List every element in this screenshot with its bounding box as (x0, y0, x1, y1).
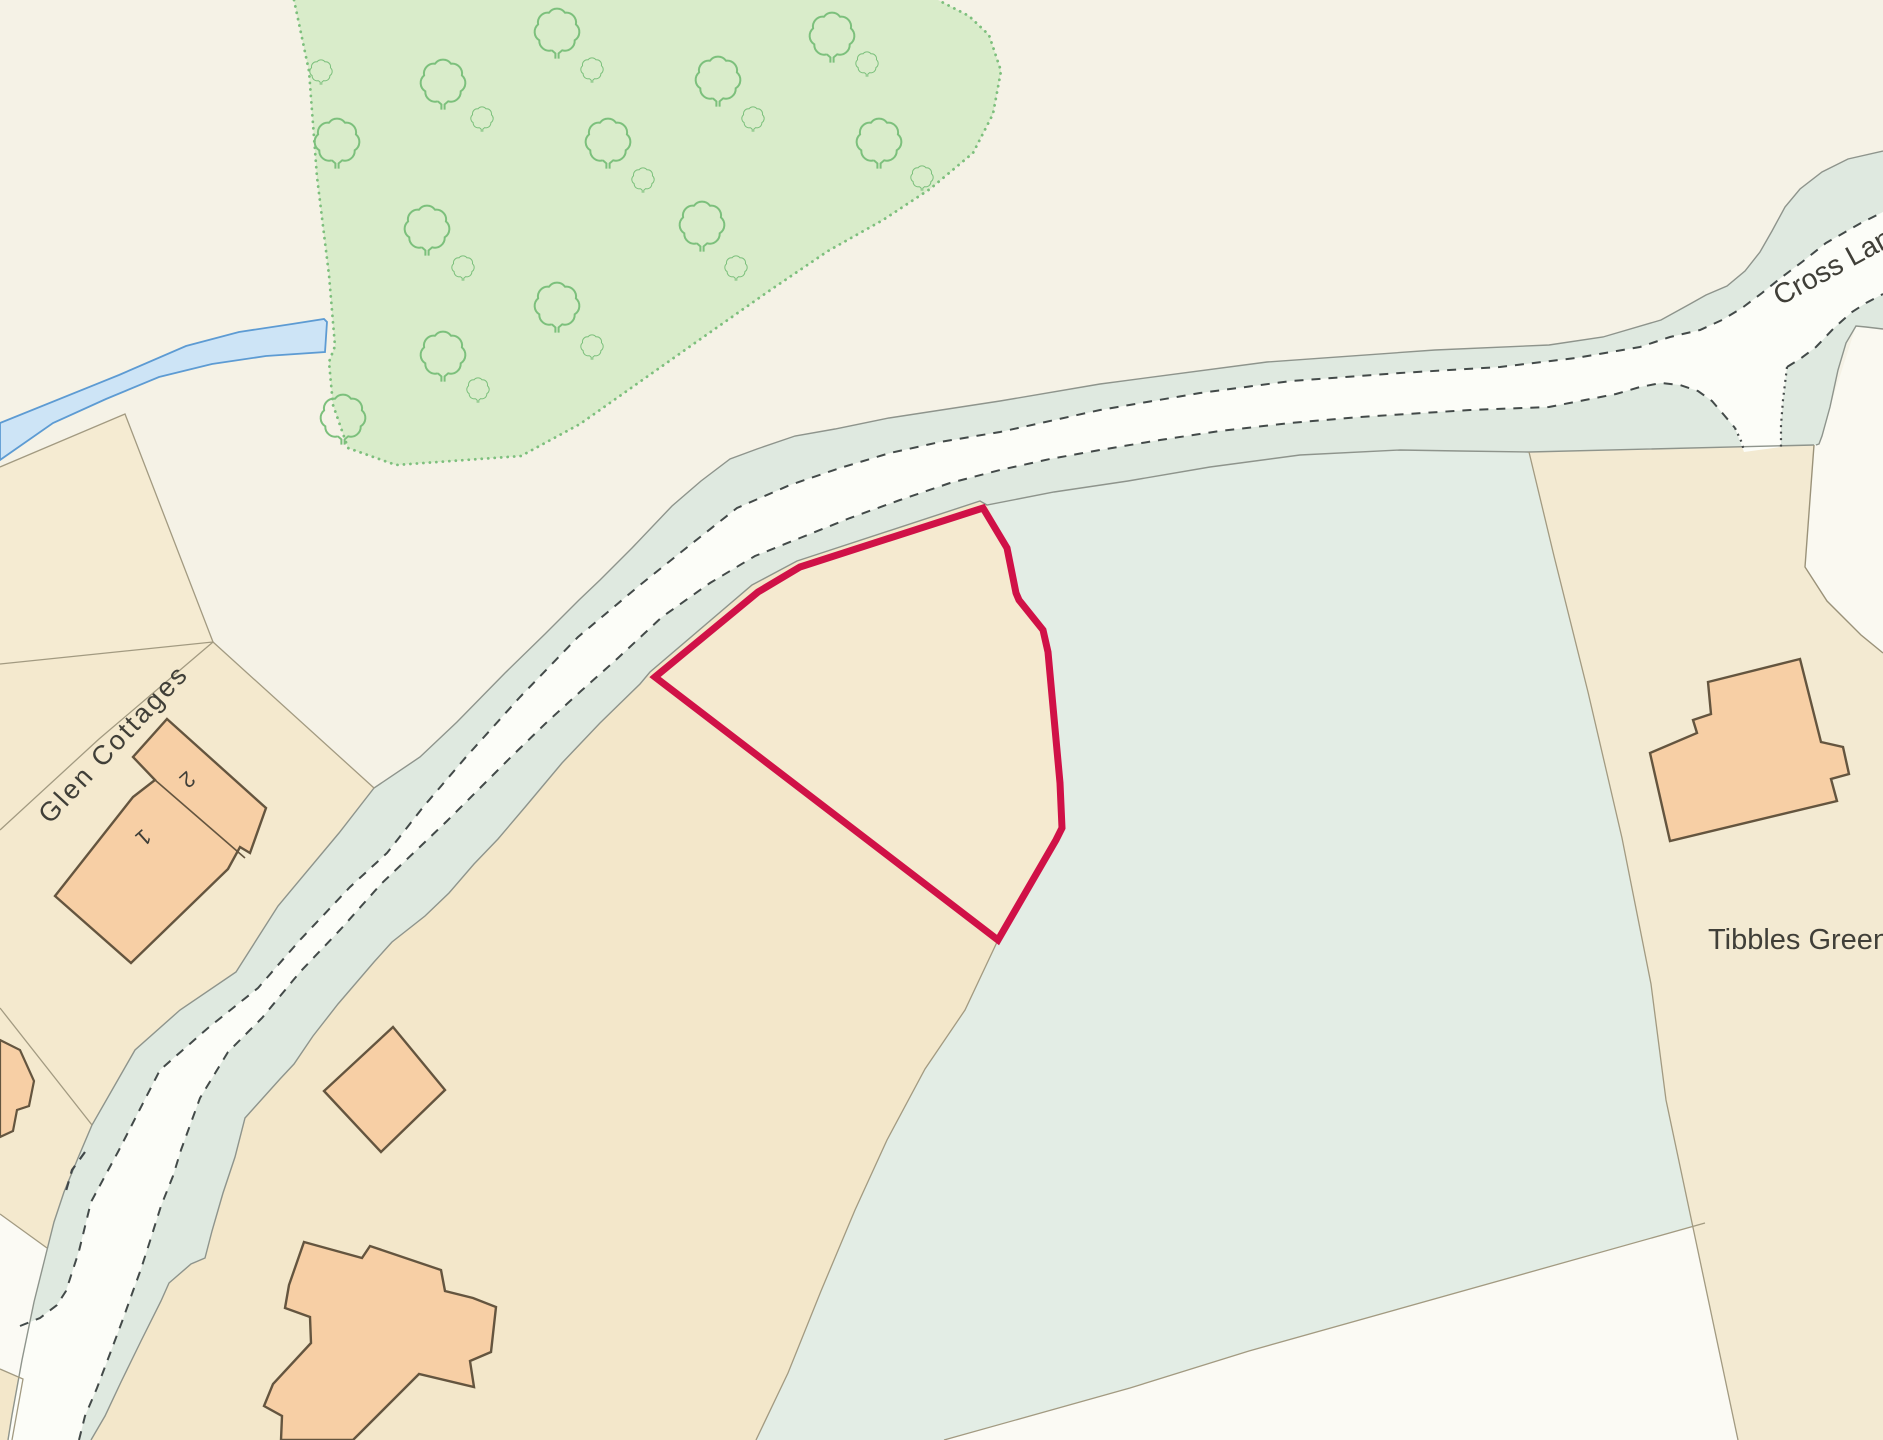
svg-text:Tibbles Green: Tibbles Green (1708, 924, 1883, 956)
